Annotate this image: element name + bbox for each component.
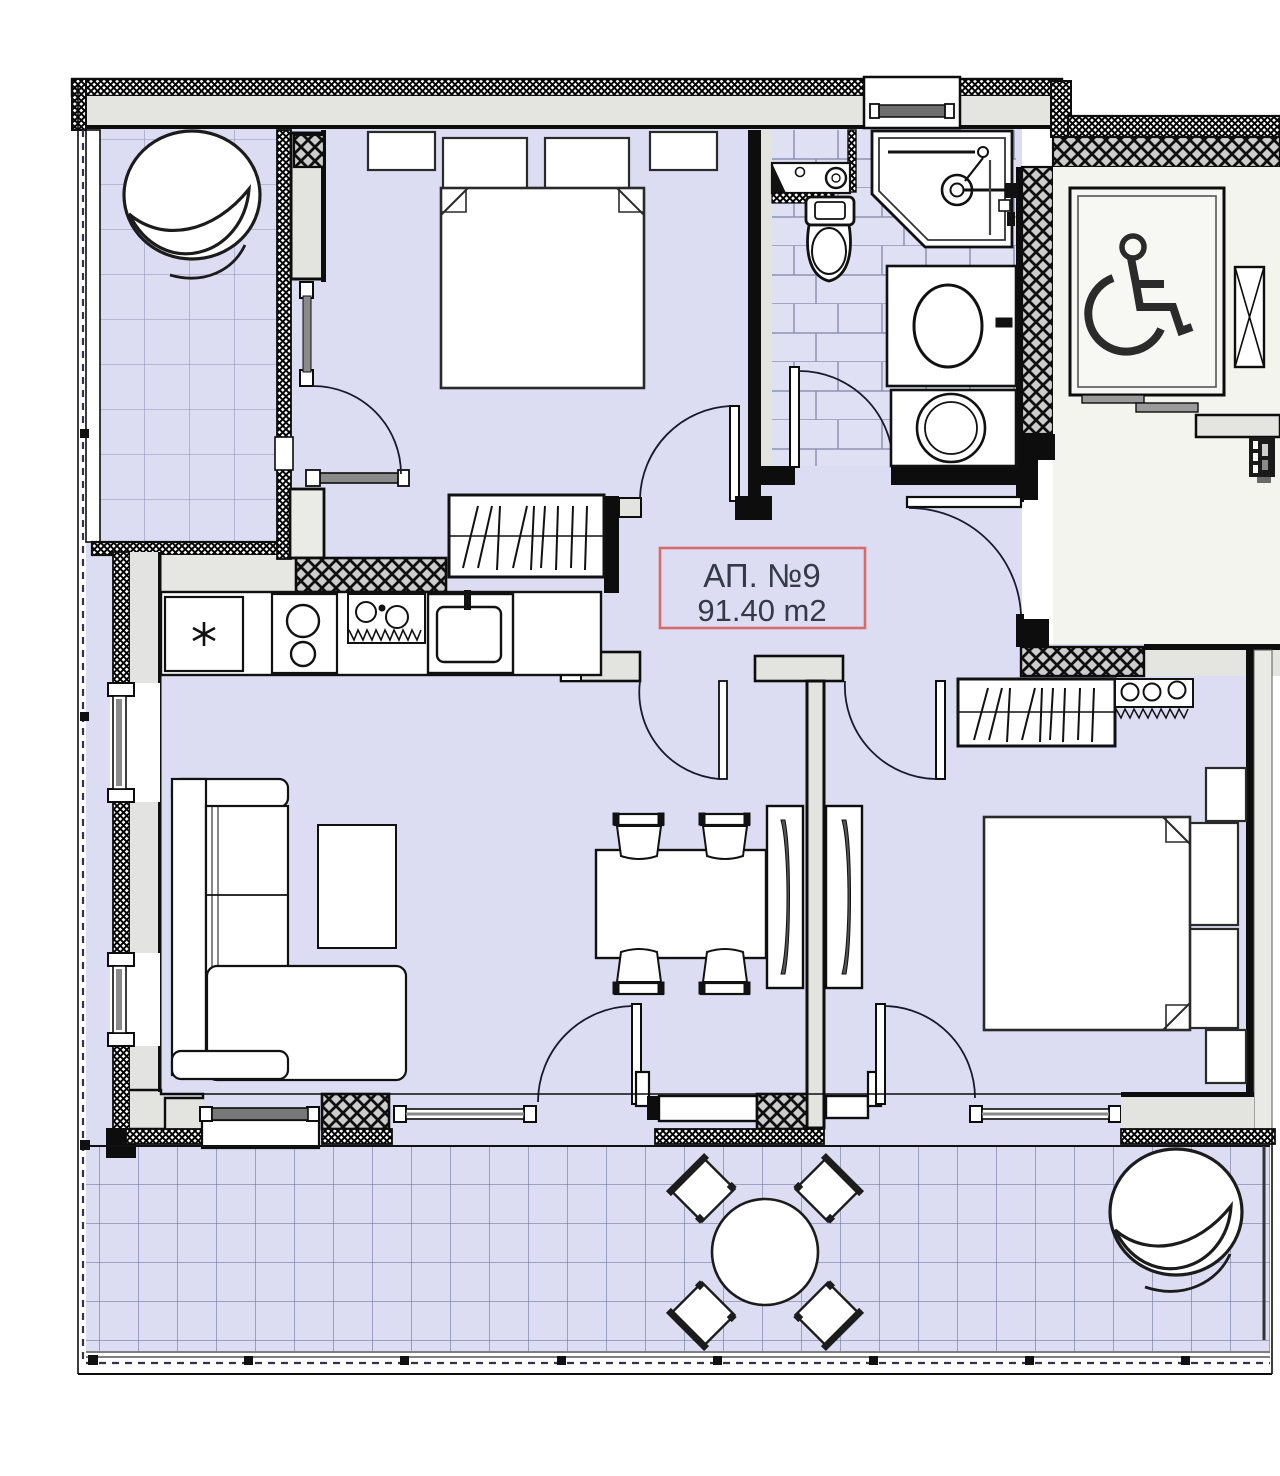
svg-text:91.40 m2: 91.40 m2: [697, 593, 826, 628]
svg-text:АП. №9: АП. №9: [703, 557, 820, 594]
